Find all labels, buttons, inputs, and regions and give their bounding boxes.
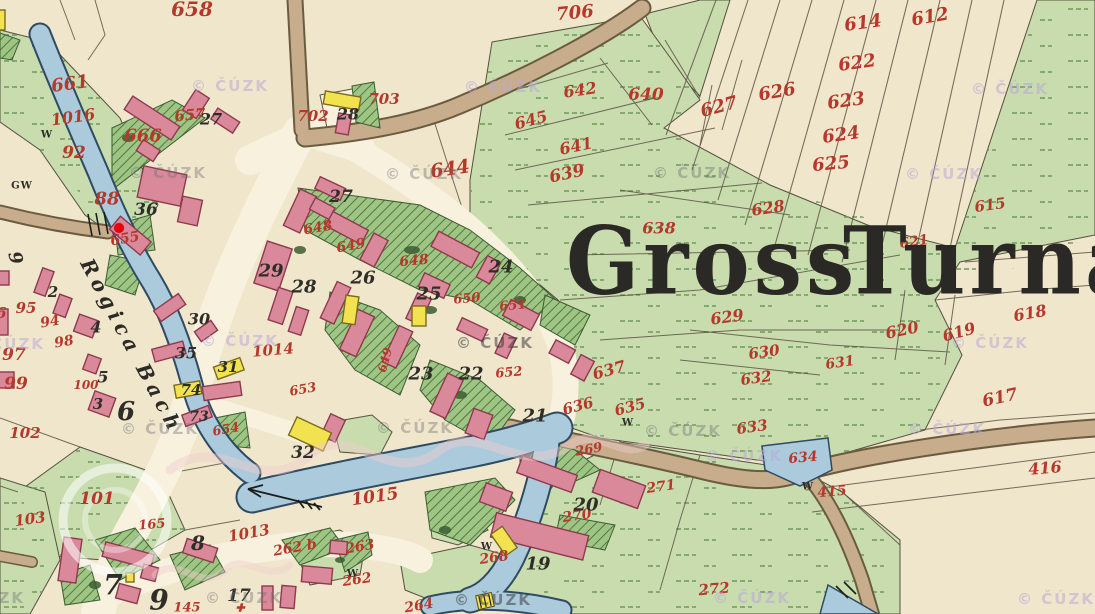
map-terrain-graphic (0, 0, 1095, 614)
red-marker-dot (114, 223, 124, 233)
cadastral-map-canvas[interactable]: Rogica Bach 6587066146126226426406236266… (0, 0, 1095, 614)
weir (476, 592, 495, 609)
